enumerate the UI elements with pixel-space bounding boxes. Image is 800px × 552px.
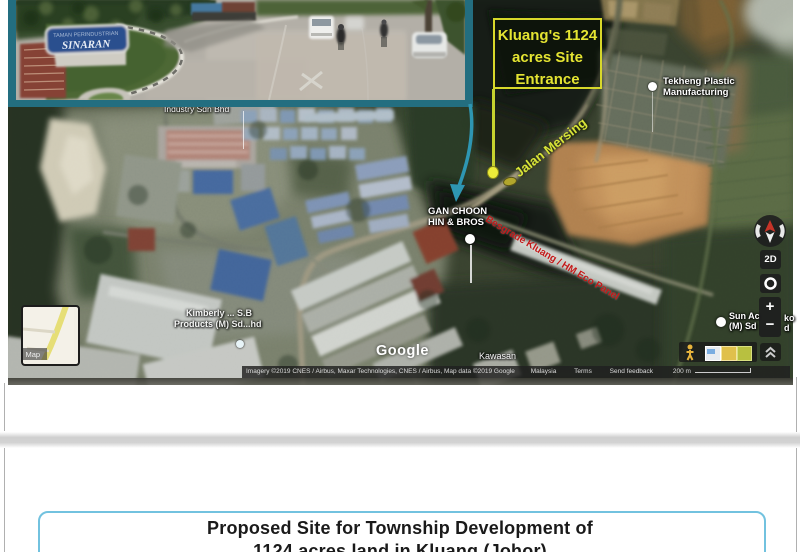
svg-text:Map: Map [26,350,41,359]
svg-text:SINARAN: SINARAN [62,38,112,52]
